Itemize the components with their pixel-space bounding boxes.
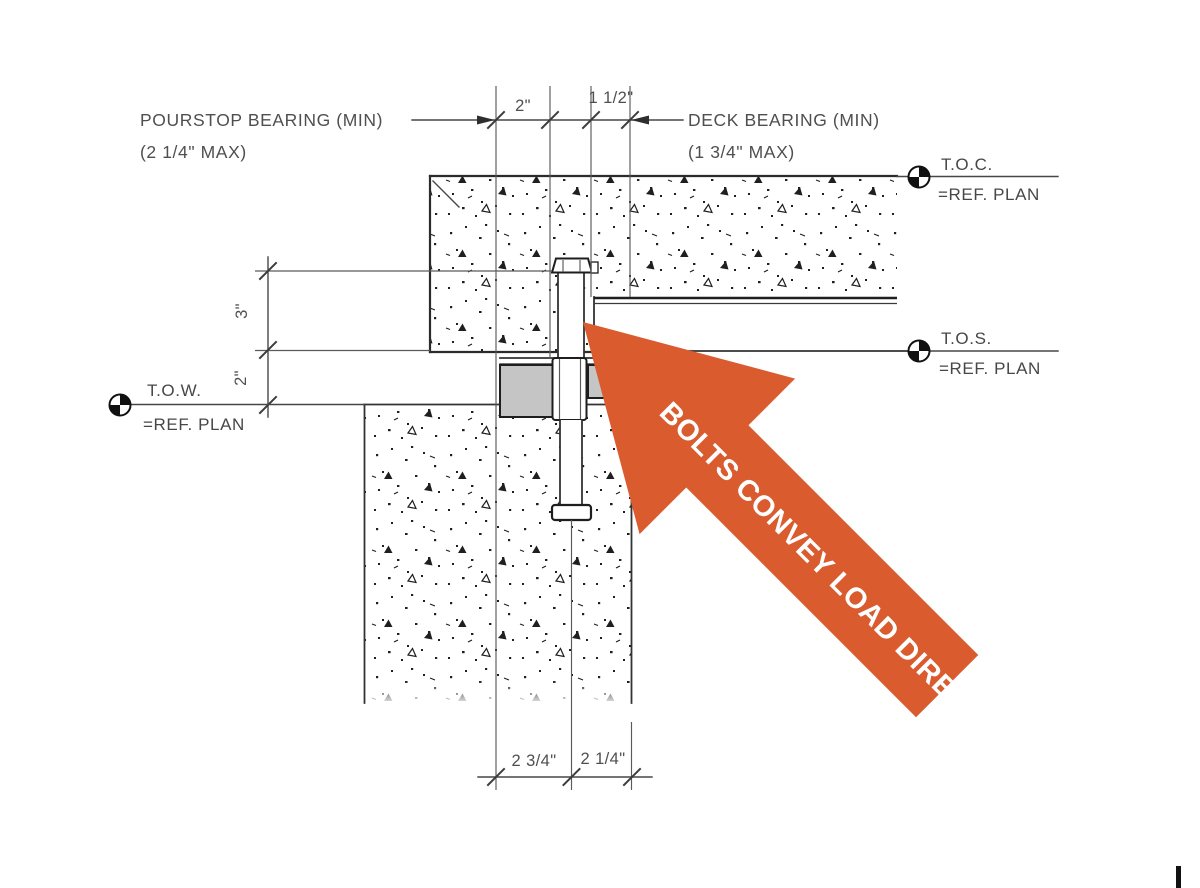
bolt-bottom-washer (552, 505, 591, 520)
tos-ref: =REF. PLAN (939, 359, 1041, 378)
toc-ref: =REF. PLAN (938, 185, 1040, 204)
tow-ref: =REF. PLAN (143, 415, 245, 434)
tow-label: T.O.W. (147, 381, 202, 400)
weld-tab (591, 262, 598, 273)
dim-bottom-left: 2 3/4" (512, 752, 557, 770)
toc-label: T.O.C. (941, 155, 993, 174)
callout-arrow-text: BOLTS CONVEY LOAD DIRECTLY (653, 396, 1015, 758)
tos-label: T.O.S. (941, 329, 992, 348)
embed-plate-left (500, 365, 553, 417)
bottom-dimension-line: 2 3/4" 2 1/4" (478, 750, 652, 785)
dim-side-upper: 3" (233, 303, 251, 319)
hex-bolt-head (552, 259, 592, 273)
deck-note-line2: (1 3/4" MAX) (688, 142, 795, 162)
elevation-toc: T.O.C. =REF. PLAN (897, 155, 1058, 204)
structural-detail-svg: 2" 1 1/2" 3" 2" 2 3/4" 2 1/4" POURSTOP B… (0, 0, 1200, 888)
dim-deck-bearing: 1 1/2" (589, 89, 634, 107)
pourstop-note-line2: (2 1/4" MAX) (140, 142, 247, 162)
elevation-tow: T.O.W. =REF. PLAN (110, 381, 365, 434)
lower-concrete-wall (364, 405, 632, 707)
dim-pourstop-bearing: 2" (515, 97, 531, 115)
bolt-nut (553, 358, 587, 420)
deck-note-line1: DECK BEARING (MIN) (688, 110, 880, 130)
elevation-target-icon (110, 395, 131, 416)
dim-side-lower: 2" (232, 370, 250, 386)
pourstop-note: POURSTOP BEARING (MIN) (2 1/4" MAX) (140, 110, 383, 162)
dim-bottom-right: 2 1/4" (581, 750, 626, 768)
deck-note: DECK BEARING (MIN) (1 3/4" MAX) (688, 110, 880, 162)
pourstop-note-line1: POURSTOP BEARING (MIN) (140, 110, 383, 130)
elevation-target-icon (909, 341, 930, 362)
metal-deck-lines (594, 298, 897, 304)
edge-artifact-mark (1176, 866, 1181, 888)
left-dimension-line: 3" 2" (232, 257, 276, 417)
elevation-target-icon (909, 167, 930, 188)
top-dimension-line: 2" 1 1/2" (412, 89, 683, 128)
upper-concrete-slab (430, 176, 897, 352)
detail-drawing-canvas: 2" 1 1/2" 3" 2" 2 3/4" 2 1/4" POURSTOP B… (0, 0, 1200, 888)
